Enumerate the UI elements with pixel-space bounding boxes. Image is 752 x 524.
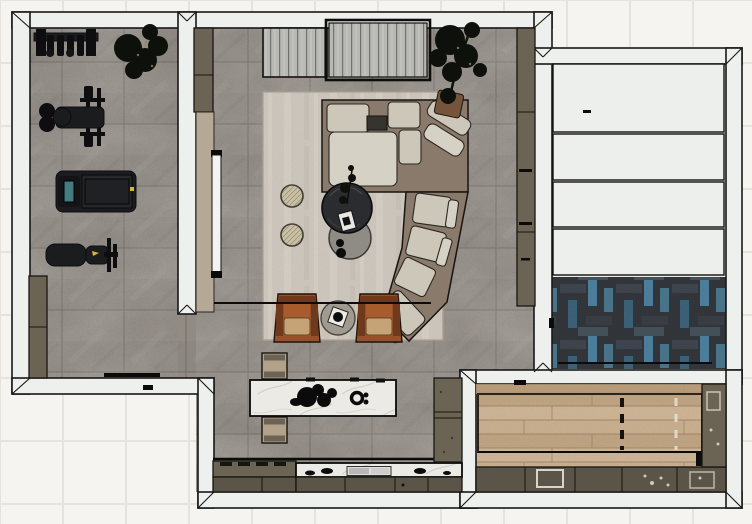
tall-cabinets[interactable]	[434, 378, 462, 462]
leather-armchair-1[interactable]	[274, 294, 320, 342]
sectional-door-panels[interactable]	[553, 64, 724, 275]
media-wall-panel	[196, 112, 214, 312]
floor-plan-render	[0, 0, 752, 524]
sofa-tray	[367, 116, 387, 130]
marble-counter[interactable]	[296, 463, 462, 492]
island-bench-top[interactable]	[262, 353, 287, 379]
fluted-sideboard-1[interactable]	[263, 28, 327, 77]
wall-tv[interactable]	[211, 150, 222, 278]
fluted-sideboard-2[interactable]	[329, 23, 427, 77]
rec-side-cabinets[interactable]	[702, 384, 726, 467]
between-chairs-table[interactable]	[321, 301, 355, 335]
divider-wall	[178, 12, 196, 314]
garage-wall-fixture	[549, 318, 554, 328]
floor-plan-canvas	[0, 0, 752, 524]
marble-island[interactable]	[250, 378, 396, 417]
tall-cabinet-right[interactable]	[517, 28, 535, 306]
treadmill-logo	[130, 187, 134, 191]
gym-door-track[interactable]	[104, 373, 160, 377]
rec-storage-cabinets[interactable]	[476, 467, 726, 492]
leather-armchair-2[interactable]	[356, 294, 402, 342]
rec-remote-item	[514, 380, 526, 385]
wall-cabinet-left[interactable]	[194, 28, 213, 112]
door-hardware	[143, 385, 153, 390]
pouf-1[interactable]	[281, 185, 303, 207]
chaise-cushion	[329, 132, 397, 186]
island-bench-bottom[interactable]	[262, 417, 287, 443]
wood-border-top	[476, 384, 726, 394]
pouf-2[interactable]	[281, 224, 303, 246]
cooktop-counter-left[interactable]	[213, 461, 296, 492]
treadmill[interactable]	[56, 171, 136, 212]
base-cabinets[interactable]	[296, 477, 462, 492]
